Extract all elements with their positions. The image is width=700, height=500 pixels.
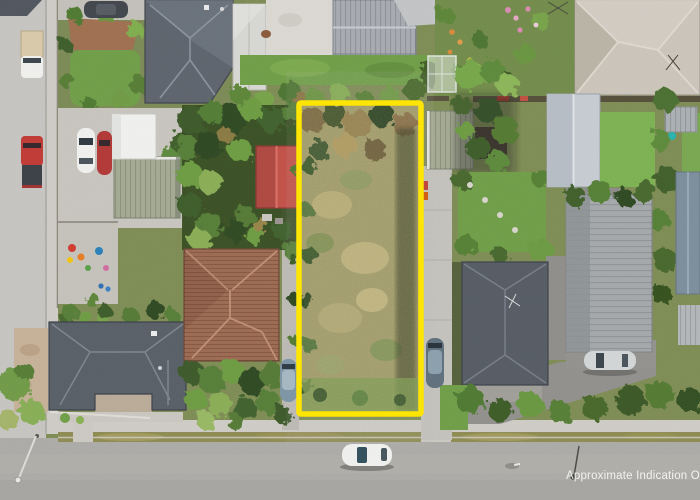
aerial-photograph (0, 0, 700, 500)
photo-grain-overlay (0, 0, 700, 500)
aerial-photo: Approximate Indication O (0, 0, 700, 500)
watermark-text: Approximate Indication O (566, 468, 700, 486)
